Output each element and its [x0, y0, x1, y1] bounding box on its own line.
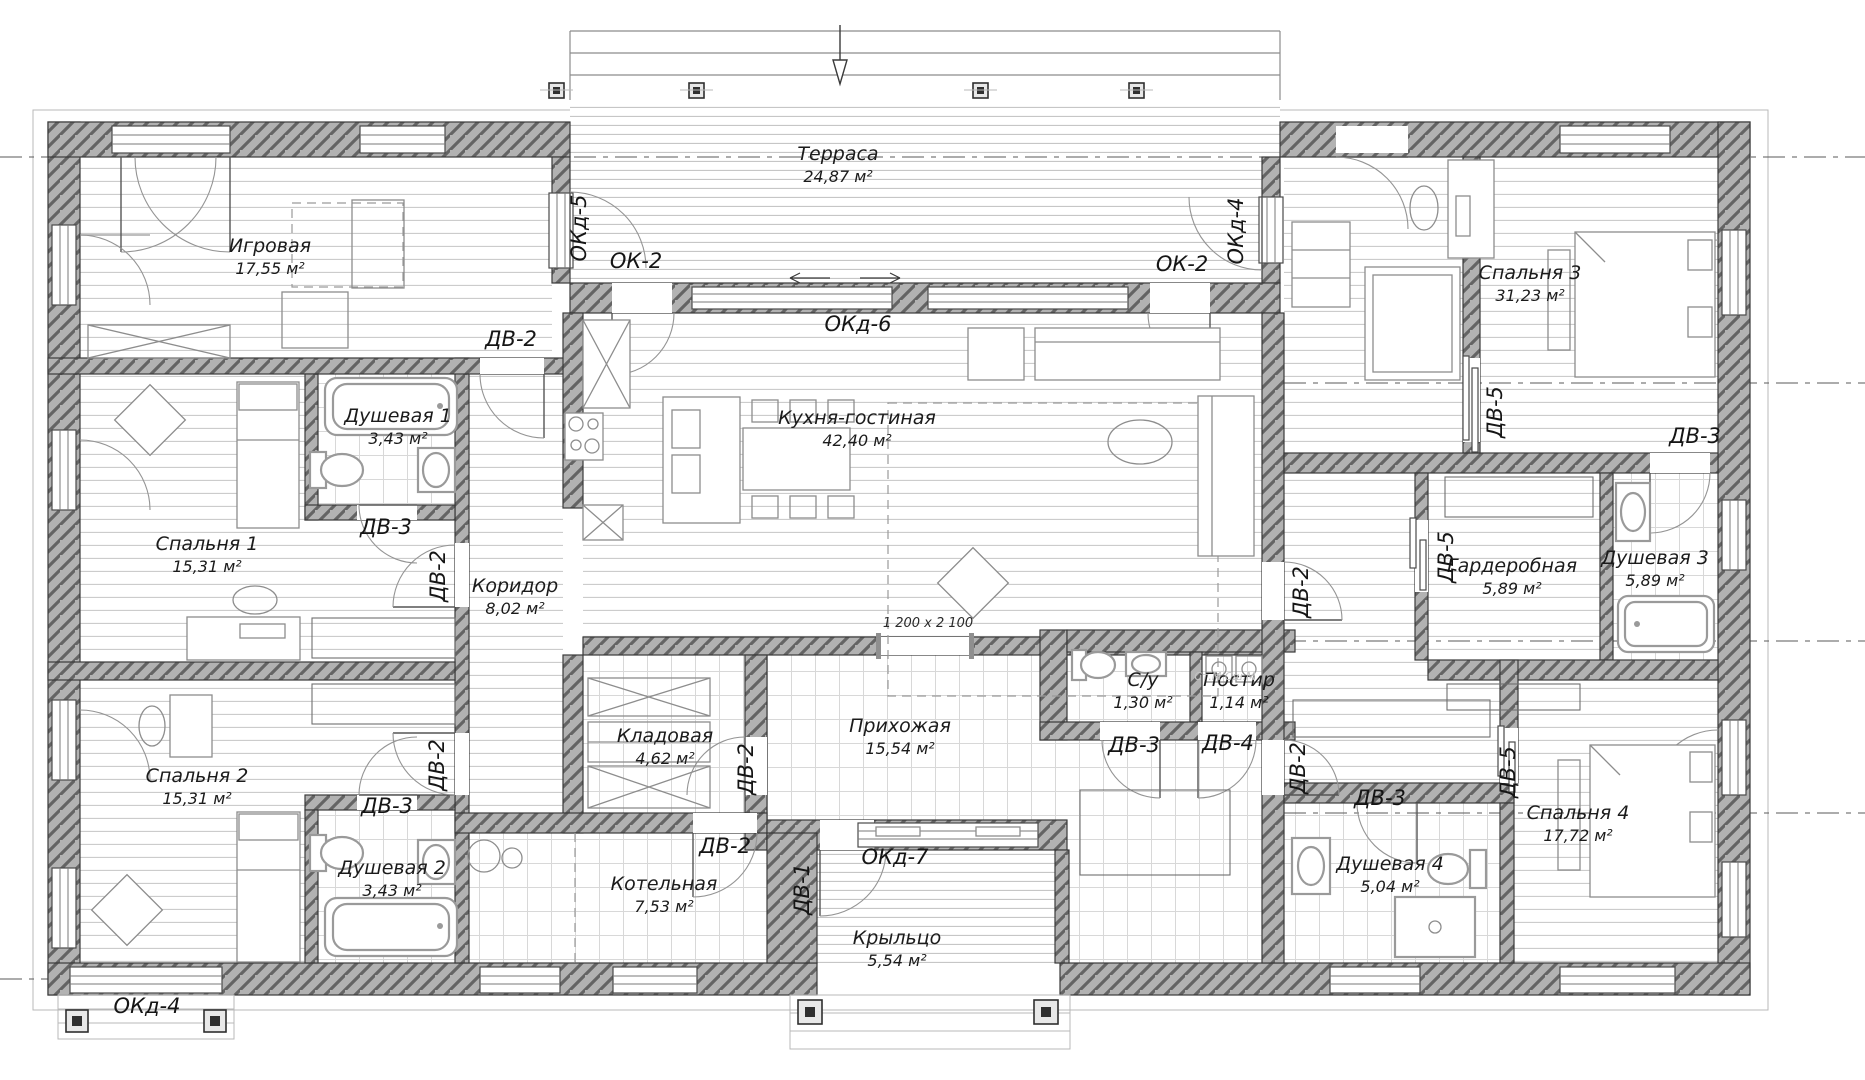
- wall-shower1-west: [305, 374, 318, 520]
- room-label-name-prihozhaya: Прихожая: [849, 715, 951, 737]
- room-label-name-su: С/у: [1128, 669, 1160, 691]
- wall-wardrobe-south: [1428, 660, 1718, 680]
- fridge-icon: [583, 320, 630, 408]
- wall-corridor-west: [455, 358, 469, 963]
- room-label-area-dushevaya-1: 3,43 м²: [368, 429, 428, 448]
- window-icon: [112, 126, 230, 153]
- floor-igrovaya: [80, 157, 552, 358]
- room-label-area-kryltso: 5,54 м²: [867, 951, 927, 970]
- north-arrow-icon: [833, 60, 847, 84]
- sink-icon: [1292, 838, 1330, 894]
- bed-icon: [237, 812, 300, 962]
- tag-дв-3-23: ДВ-3: [1668, 424, 1721, 448]
- bed-icon: [237, 382, 299, 528]
- window-icon: [613, 967, 697, 993]
- room-label-name-spalnya-4: Спальня 4: [1527, 802, 1630, 824]
- room-label-name-spalnya-2: Спальня 2: [146, 765, 249, 787]
- tag-дв-5-21: ДВ-5: [1483, 386, 1507, 439]
- floor-plan-page: Терраса24,87 м²Игровая17,55 м²Душевая 13…: [0, 0, 1865, 1080]
- window-icon: [1722, 230, 1746, 315]
- sofa-icon: [1198, 396, 1254, 556]
- tag-дв-3-6: ДВ-3: [359, 515, 412, 539]
- room-label-area-kuhnya: 42,40 м²: [822, 431, 892, 450]
- floor-plan-svg: Терраса24,87 м²Игровая17,55 м²Душевая 13…: [0, 0, 1865, 1080]
- room-label-name-kryltso: Крыльцо: [853, 927, 941, 949]
- column-icon: [1034, 1000, 1058, 1024]
- room-label-name-spalnya-1: Спальня 1: [156, 533, 259, 555]
- room-label-name-dushevaya-3: Душевая 3: [1600, 547, 1709, 569]
- note-1: Ст.М Сш.М: [1194, 670, 1256, 683]
- room-label-name-garderobnaya: Гардеробная: [1447, 555, 1577, 577]
- tag-дв-1-12: ДВ-1: [790, 863, 814, 916]
- tag-дв-3-18: ДВ-3: [1353, 786, 1406, 810]
- kitchen-cabinet-icon: [583, 505, 623, 540]
- wall-pantry-west: [563, 655, 583, 833]
- wall-bedroom4-west-lower: [1500, 803, 1514, 963]
- room-label-area-prihozhaya: 15,54 м²: [865, 739, 935, 758]
- wall-su-north: [1067, 630, 1295, 652]
- room-label-area-igrovaya: 17,55 м²: [235, 259, 305, 278]
- wall-su-south: [1040, 722, 1295, 740]
- room-label-name-dushevaya-2: Душевая 2: [337, 857, 446, 879]
- room-label-area-postir: 1,14 м²: [1209, 693, 1269, 712]
- tag-дв-2-10: ДВ-2: [734, 743, 758, 796]
- room-label-area-dushevaya-2: 3,43 м²: [362, 881, 422, 900]
- tag-дв-5-22: ДВ-5: [1434, 531, 1458, 584]
- column-icon: [1120, 83, 1153, 98]
- window-icon: [1560, 967, 1675, 993]
- kitchen-island-icon: [663, 397, 740, 523]
- stove-icon: [565, 413, 603, 460]
- window-icon: [1722, 720, 1746, 795]
- tag-дв-2-7: ДВ-2: [426, 550, 450, 603]
- tag-дв-2-8: ДВ-2: [425, 739, 449, 792]
- tag-окд-4-14: ОКд-4: [114, 994, 181, 1018]
- window-icon: [52, 700, 76, 780]
- tag-дв-3-15: ДВ-3: [1107, 733, 1160, 757]
- armchair-icon: [968, 328, 1024, 380]
- room-label-name-dushevaya-4: Душевая 4: [1335, 853, 1444, 875]
- toilet-icon: [310, 452, 363, 488]
- window-icon: [480, 967, 560, 993]
- tag-окд-7-13: ОКд-7: [862, 845, 930, 869]
- room-label-name-terrasa: Терраса: [797, 143, 878, 165]
- crib-icon: [1365, 267, 1460, 380]
- wall-porch-east: [1055, 850, 1069, 963]
- tag-дв-2-17: ДВ-2: [1286, 742, 1310, 795]
- tag-ок-2-1: ОК-2: [610, 249, 662, 273]
- terrace-columns: [540, 83, 1153, 98]
- room-label-area-spalnya-2: 15,31 м²: [162, 789, 232, 808]
- column-icon: [540, 83, 573, 98]
- room-label-area-su: 1,30 м²: [1113, 693, 1173, 712]
- sink-icon: [418, 448, 455, 492]
- floor-prihozhaya: [767, 655, 1067, 820]
- porch: [790, 995, 1070, 1049]
- room-label-area-spalnya-1: 15,31 м²: [172, 557, 242, 576]
- column-icon: [204, 1010, 226, 1032]
- tag-ок-2-3: ОК-2: [1156, 252, 1208, 276]
- room-label-area-terrasa: 24,87 м²: [803, 167, 873, 186]
- room-label-area-spalnya-4: 17,72 м²: [1543, 826, 1613, 845]
- room-label-name-dushevaya-1: Душевая 1: [343, 405, 452, 427]
- column-icon: [680, 83, 713, 98]
- window-icon: [928, 287, 1128, 309]
- room-label-name-kuhnya: Кухня-гостиная: [778, 407, 936, 429]
- window-icon: [1722, 862, 1746, 937]
- column-icon: [798, 1000, 822, 1024]
- tag-окд-5-0: ОКд-5: [567, 195, 591, 262]
- wall-shower2-west: [305, 810, 318, 963]
- room-label-area-dushevaya-4: 5,04 м²: [1360, 877, 1420, 896]
- tag-дв-2-20: ДВ-2: [1289, 566, 1313, 619]
- bathtub-icon: [1618, 596, 1714, 652]
- tag-дв-3-9: ДВ-3: [360, 794, 413, 818]
- room-label-name-spalnya-3: Спальня 3: [1479, 262, 1582, 284]
- room-label-name-kotelnaya: Котельная: [611, 873, 718, 895]
- tag-дв-2-11: ДВ-2: [698, 834, 751, 858]
- room-label-area-kladovaya: 4,62 м²: [635, 749, 695, 768]
- wall-kitchen-west: [563, 313, 583, 508]
- floor-hall-east: [1067, 740, 1262, 963]
- shower-tray-icon: [1395, 897, 1475, 957]
- room-label-area-koridor: 8,02 м²: [485, 599, 545, 618]
- room-label-name-kladovaya: Кладовая: [617, 725, 713, 747]
- window-icon: [692, 287, 892, 309]
- window-icon: [1330, 967, 1420, 993]
- dresser-icon: [1292, 222, 1350, 307]
- window-icon: [858, 823, 1038, 847]
- window-icon: [360, 126, 445, 153]
- column-icon: [66, 1010, 88, 1032]
- window-icon: [52, 225, 76, 305]
- room-label-area-dushevaya-3: 5,89 м²: [1625, 571, 1685, 590]
- tag-окд-4-4: ОКд-4: [1224, 198, 1248, 265]
- window-icon: [52, 430, 76, 510]
- tag-окд-6-2: ОКд-6: [825, 312, 892, 336]
- room-label-name-igrovaya: Игровая: [229, 235, 311, 257]
- bed-icon: [1575, 232, 1715, 377]
- tag-дв-4-16: ДВ-4: [1201, 731, 1254, 755]
- room-label-area-garderobnaya: 5,89 м²: [1482, 579, 1542, 598]
- wall-center-right-divider: [1262, 313, 1284, 963]
- toilet-icon: [1072, 650, 1115, 680]
- tag-дв-2-5: ДВ-2: [484, 327, 537, 351]
- room-label-area-spalnya-3: 31,23 м²: [1495, 286, 1565, 305]
- note-0: 1 200 x 2 100: [883, 616, 973, 631]
- window-icon: [1560, 126, 1670, 153]
- sofa-icon: [1035, 328, 1220, 380]
- bathtub-icon: [325, 898, 457, 956]
- room-label-name-koridor: Коридор: [472, 575, 558, 597]
- tag-дв-5-19: ДВ-5: [1496, 746, 1520, 799]
- wall-su-postir: [1190, 652, 1202, 722]
- wall-bedroom-divider: [48, 662, 455, 680]
- window-icon: [1722, 500, 1746, 570]
- sink-icon: [1616, 483, 1650, 541]
- window-icon: [52, 868, 76, 948]
- column-icon: [964, 83, 997, 98]
- room-label-area-kotelnaya: 7,53 м²: [634, 897, 694, 916]
- window-icon: [70, 967, 222, 993]
